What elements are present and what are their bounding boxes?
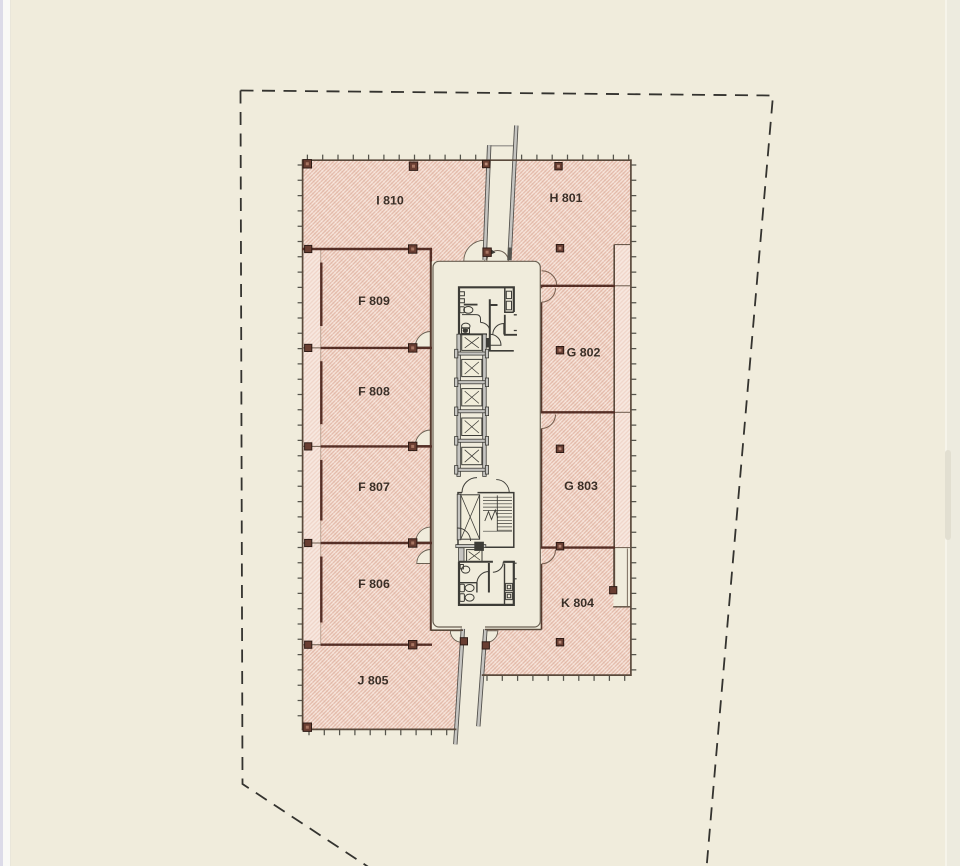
svg-text:G 803: G 803 <box>564 479 598 493</box>
svg-text:K 804: K 804 <box>561 596 594 610</box>
svg-text:F 807: F 807 <box>358 480 390 494</box>
svg-text:F 808: F 808 <box>358 385 390 399</box>
svg-text:H 801: H 801 <box>549 191 582 205</box>
svg-text:J 805: J 805 <box>357 674 388 688</box>
svg-text:F 809: F 809 <box>358 294 390 308</box>
svg-text:F 806: F 806 <box>358 577 390 591</box>
svg-text:I 810: I 810 <box>376 193 404 207</box>
svg-text:G 802: G 802 <box>567 346 601 360</box>
